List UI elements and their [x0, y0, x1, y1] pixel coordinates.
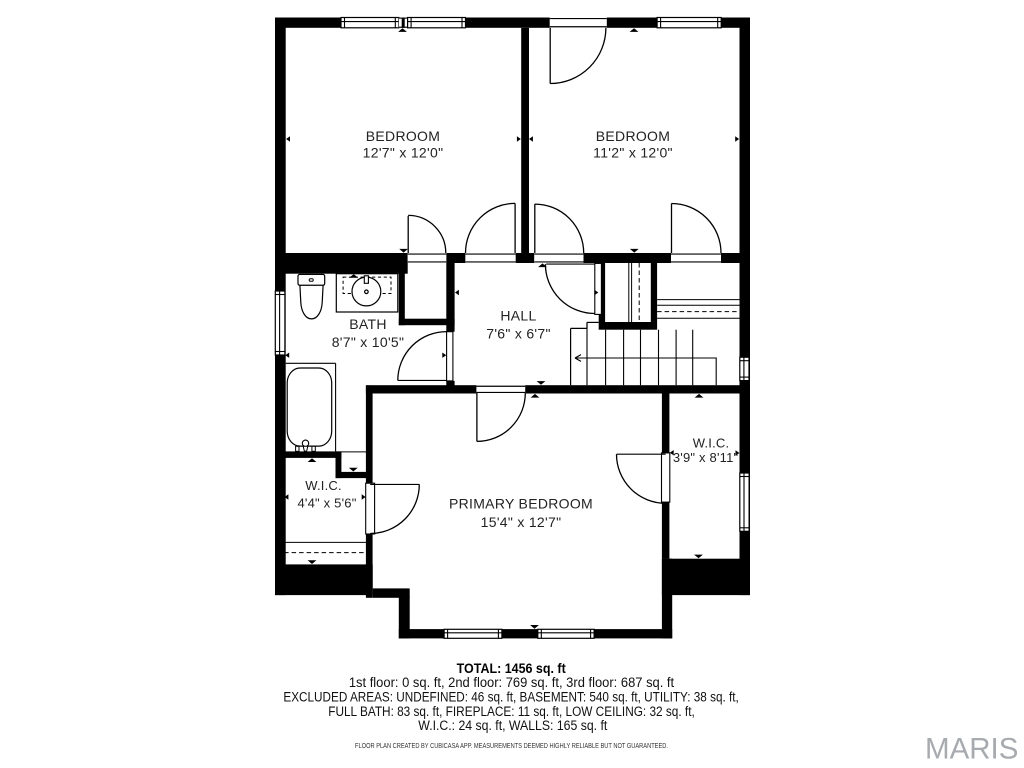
svg-text:7'6" x 6'7": 7'6" x 6'7": [486, 325, 551, 341]
svg-text:W.I.C.: W.I.C.: [693, 435, 730, 450]
svg-text:MARIS: MARIS: [925, 733, 1018, 766]
svg-text:BEDROOM: BEDROOM: [366, 128, 440, 144]
svg-text:FLOOR PLAN CREATED BY CUBICASA: FLOOR PLAN CREATED BY CUBICASA APP. MEAS…: [355, 743, 668, 750]
svg-text:11'2" x 12'0": 11'2" x 12'0": [593, 145, 673, 161]
svg-text:W.I.C.: W.I.C.: [305, 478, 342, 493]
svg-text:3'9" x 8'11": 3'9" x 8'11": [673, 450, 739, 465]
svg-text:4'4" x 5'6": 4'4" x 5'6": [297, 495, 356, 510]
svg-text:W.I.C.: 24 sq. ft, WALLS: 165: W.I.C.: 24 sq. ft, WALLS: 165 sq. ft: [418, 718, 607, 734]
svg-text:HALL: HALL: [500, 307, 536, 323]
svg-text:8'7" x 10'5": 8'7" x 10'5": [332, 334, 405, 350]
svg-text:PRIMARY BEDROOM: PRIMARY BEDROOM: [449, 496, 593, 512]
svg-text:12'7" x 12'0": 12'7" x 12'0": [363, 145, 444, 161]
svg-text:BEDROOM: BEDROOM: [596, 128, 670, 144]
svg-text:BATH: BATH: [349, 316, 387, 332]
svg-text:15'4" x 12'7": 15'4" x 12'7": [481, 514, 562, 530]
